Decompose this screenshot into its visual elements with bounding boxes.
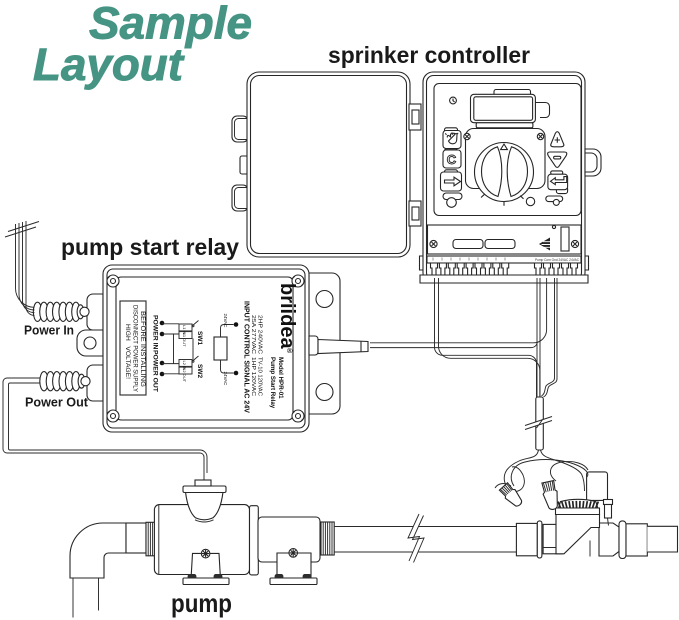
svg-text:24VAC: 24VAC: [223, 372, 228, 387]
svg-text:SW2: SW2: [196, 364, 203, 378]
svg-text:Power In: Power In: [24, 324, 74, 338]
svg-text:Pump Start Relay: Pump Start Relay: [269, 357, 276, 409]
svg-text:®: ®: [285, 348, 293, 354]
svg-text:TV-10 120VAC: TV-10 120VAC: [257, 357, 263, 396]
svg-text:1HP 120VAC: 1HP 120VAC: [250, 357, 256, 396]
svg-text:briidea: briidea: [276, 283, 298, 349]
svg-text:POWER IN: POWER IN: [152, 315, 159, 349]
svg-text:Pump Com Gnd 24VAC 24VAC: Pump Com Gnd 24VAC 24VAC: [535, 258, 580, 262]
svg-text:Layout: Layout: [33, 39, 185, 90]
svg-text:pump start relay: pump start relay: [61, 234, 239, 260]
svg-text:sprinker controller: sprinker controller: [328, 42, 530, 68]
svg-text:L1 OUT: L1 OUT: [182, 333, 187, 348]
svg-text:POWER OUT: POWER OUT: [152, 350, 159, 393]
svg-text:25A 277VAC: 25A 277VAC: [250, 315, 256, 354]
svg-text:DISCONNECT POWER SUPPLY: DISCONNECT POWER SUPPLY: [132, 305, 139, 392]
svg-text:Power Out: Power Out: [25, 396, 89, 410]
svg-text:pump: pump: [171, 588, 232, 618]
svg-text:INPUT CONTROL SIGNAL AC 24V: INPUT CONTROL SIGNAL AC 24V: [243, 301, 250, 413]
svg-text:C: C: [447, 152, 457, 167]
svg-text:SW1: SW1: [196, 331, 203, 345]
svg-text:Model HPR-01: Model HPR-01: [277, 357, 284, 399]
svg-text:L2 OUT: L2 OUT: [182, 368, 187, 383]
svg-text:24VAC: 24VAC: [223, 314, 228, 329]
svg-text:2HP 240VAC: 2HP 240VAC: [257, 315, 263, 354]
svg-text:HIGH VOLTAGE!: HIGH VOLTAGE!: [124, 324, 131, 379]
svg-text:BEFORE INSTALLING: BEFORE INSTALLING: [139, 311, 146, 387]
